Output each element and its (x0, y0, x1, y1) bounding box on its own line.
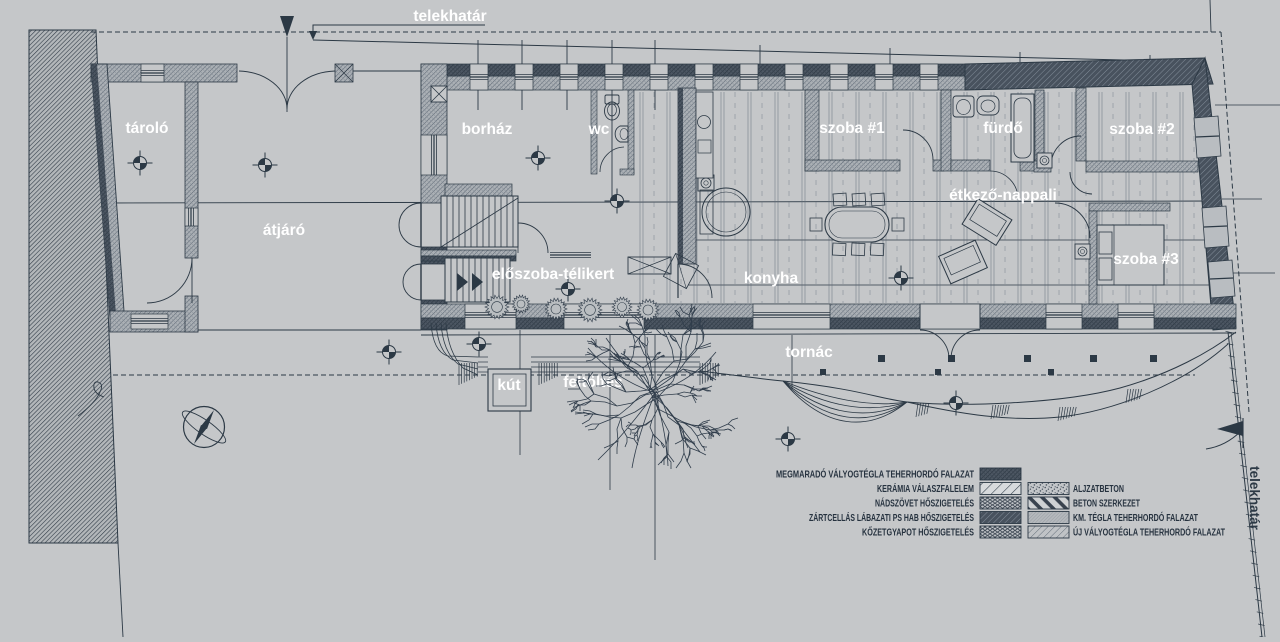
svg-text:KM. TÉGLA TEHERHORDÓ FALAZAT: KM. TÉGLA TEHERHORDÓ FALAZAT (1073, 511, 1198, 524)
svg-text:konyha: konyha (744, 270, 799, 287)
svg-text:MEGMARADÓ VÁLYOGTÉGLA TEHERHOR: MEGMARADÓ VÁLYOGTÉGLA TEHERHORDÓ FALAZAT (776, 468, 974, 481)
svg-text:borház: borház (462, 121, 513, 138)
svg-text:NÁDSZÖVET HŐSZIGETELÉS: NÁDSZÖVET HŐSZIGETELÉS (875, 497, 974, 510)
svg-text:telekhatár: telekhatár (413, 8, 486, 25)
svg-text:tároló: tároló (125, 120, 168, 137)
svg-text:tornác: tornác (785, 344, 833, 361)
svg-text:szoba #2: szoba #2 (1109, 121, 1174, 138)
svg-text:KŐZETGYAPOT HŐSZIGETELÉS: KŐZETGYAPOT HŐSZIGETELÉS (862, 526, 974, 539)
svg-text:szoba #3: szoba #3 (1113, 251, 1179, 268)
svg-text:BETON SZERKEZET: BETON SZERKEZET (1073, 499, 1140, 510)
svg-text:szoba #1: szoba #1 (819, 120, 885, 137)
svg-text:feltöltés: feltöltés (563, 374, 622, 391)
svg-text:fürdő: fürdő (983, 120, 1023, 137)
svg-text:átjáró: átjáró (263, 222, 305, 239)
svg-text:ALJZATBETON: ALJZATBETON (1073, 484, 1124, 495)
svg-text:ZÁRTCELLÁS LÁBAZATI PS HAB HŐS: ZÁRTCELLÁS LÁBAZATI PS HAB HŐSZIGETELÉS (809, 511, 974, 524)
svg-text:telekhatár: telekhatár (1247, 466, 1262, 531)
svg-text:étkező-nappali: étkező-nappali (949, 187, 1057, 204)
svg-text:ÚJ VÁLYOGTÉGLA TEHERHORDÓ FALA: ÚJ VÁLYOGTÉGLA TEHERHORDÓ FALAZAT (1073, 526, 1225, 539)
svg-text:előszoba-télikert: előszoba-télikert (492, 266, 614, 283)
svg-text:wc: wc (588, 121, 610, 138)
svg-text:kút: kút (497, 377, 520, 394)
svg-text:KERÁMIA VÁLASZFALELEM: KERÁMIA VÁLASZFALELEM (877, 482, 974, 495)
